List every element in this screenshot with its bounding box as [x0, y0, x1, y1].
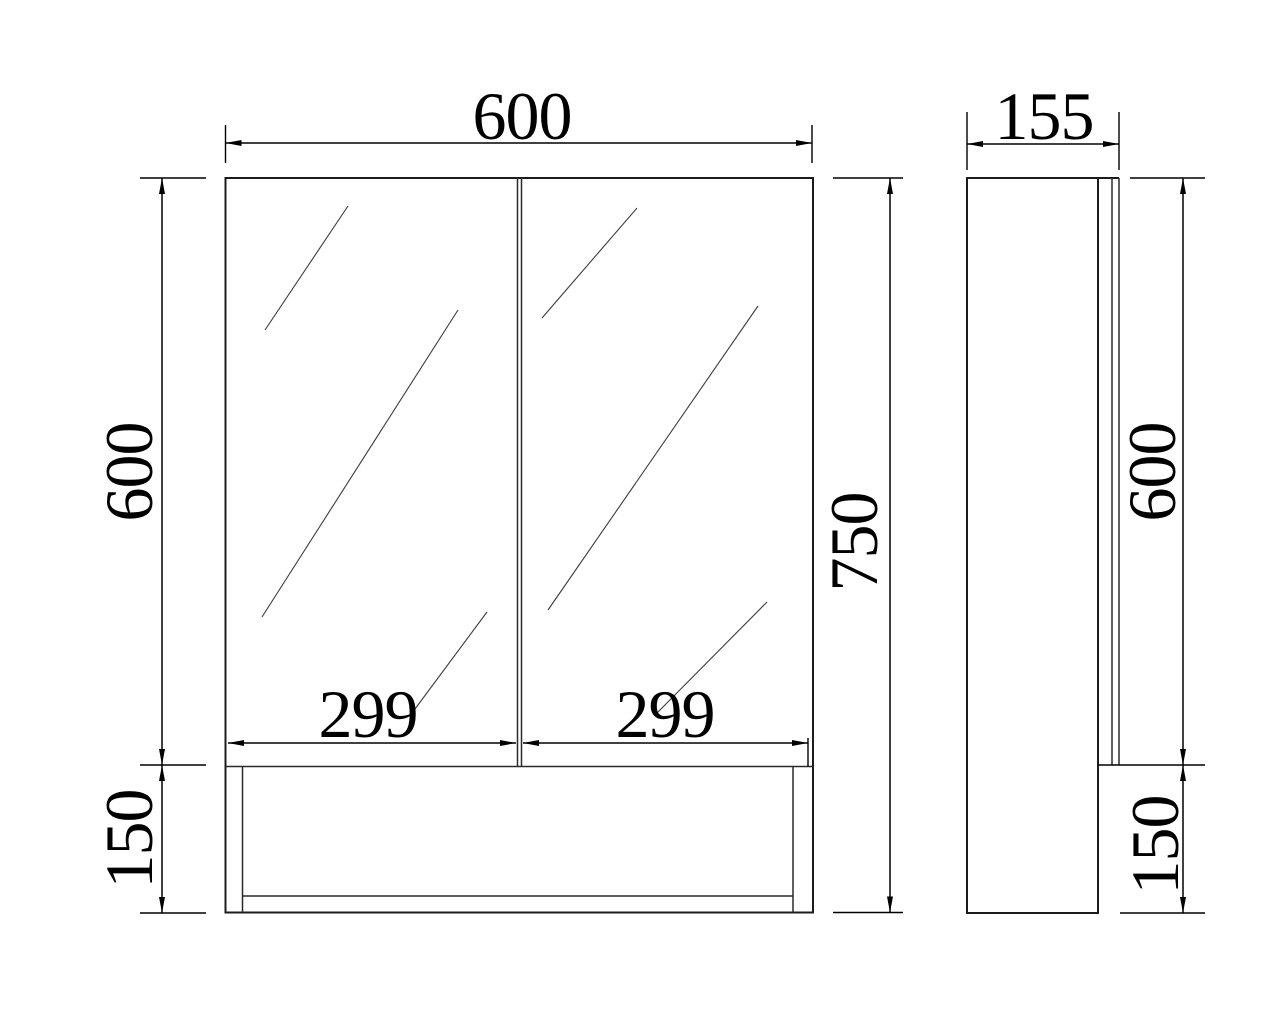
mirror-hatch-left-1	[265, 206, 348, 330]
dim-side-shelf-height: 150	[1117, 765, 1205, 913]
mirror-hatch-right-2	[548, 306, 758, 610]
dim-right-door-width: 299	[523, 676, 808, 767]
dim-front-width-label: 600	[473, 78, 572, 154]
dim-front-shelf-height: 150	[91, 765, 206, 913]
dim-front-mirror-height: 600	[91, 178, 206, 765]
dim-side-mirror-height-label: 600	[1114, 423, 1190, 522]
dim-right-door-width-label: 299	[616, 676, 715, 752]
drawing-sheet: 600 155 600 150 750 299 299	[0, 0, 1282, 1018]
mirror-hatch-right-1	[542, 208, 637, 318]
front-cabinet-outline	[226, 178, 814, 913]
mirror-hatch-left-3	[412, 612, 487, 713]
dim-side-depth-label: 155	[995, 78, 1094, 154]
dim-side-depth: 155	[967, 78, 1119, 170]
dim-front-width: 600	[226, 78, 813, 163]
dim-left-door-width: 299	[228, 676, 516, 752]
dim-side-mirror-height: 600	[1098, 178, 1205, 765]
dim-front-shelf-height-label: 150	[91, 790, 167, 889]
dim-side-shelf-height-label: 150	[1117, 796, 1193, 895]
front-view	[226, 178, 814, 913]
side-view	[967, 178, 1119, 913]
side-cabinet-outline	[967, 178, 1098, 913]
cabinet-technical-drawing: 600 155 600 150 750 299 299	[0, 0, 1282, 1018]
dim-left-door-width-label: 299	[319, 676, 418, 752]
mirror-hatch-left-2	[262, 310, 458, 617]
dim-front-mirror-height-label: 600	[91, 423, 167, 522]
dim-front-total-height-label: 750	[816, 493, 892, 592]
dim-front-total-height: 750	[816, 178, 903, 913]
